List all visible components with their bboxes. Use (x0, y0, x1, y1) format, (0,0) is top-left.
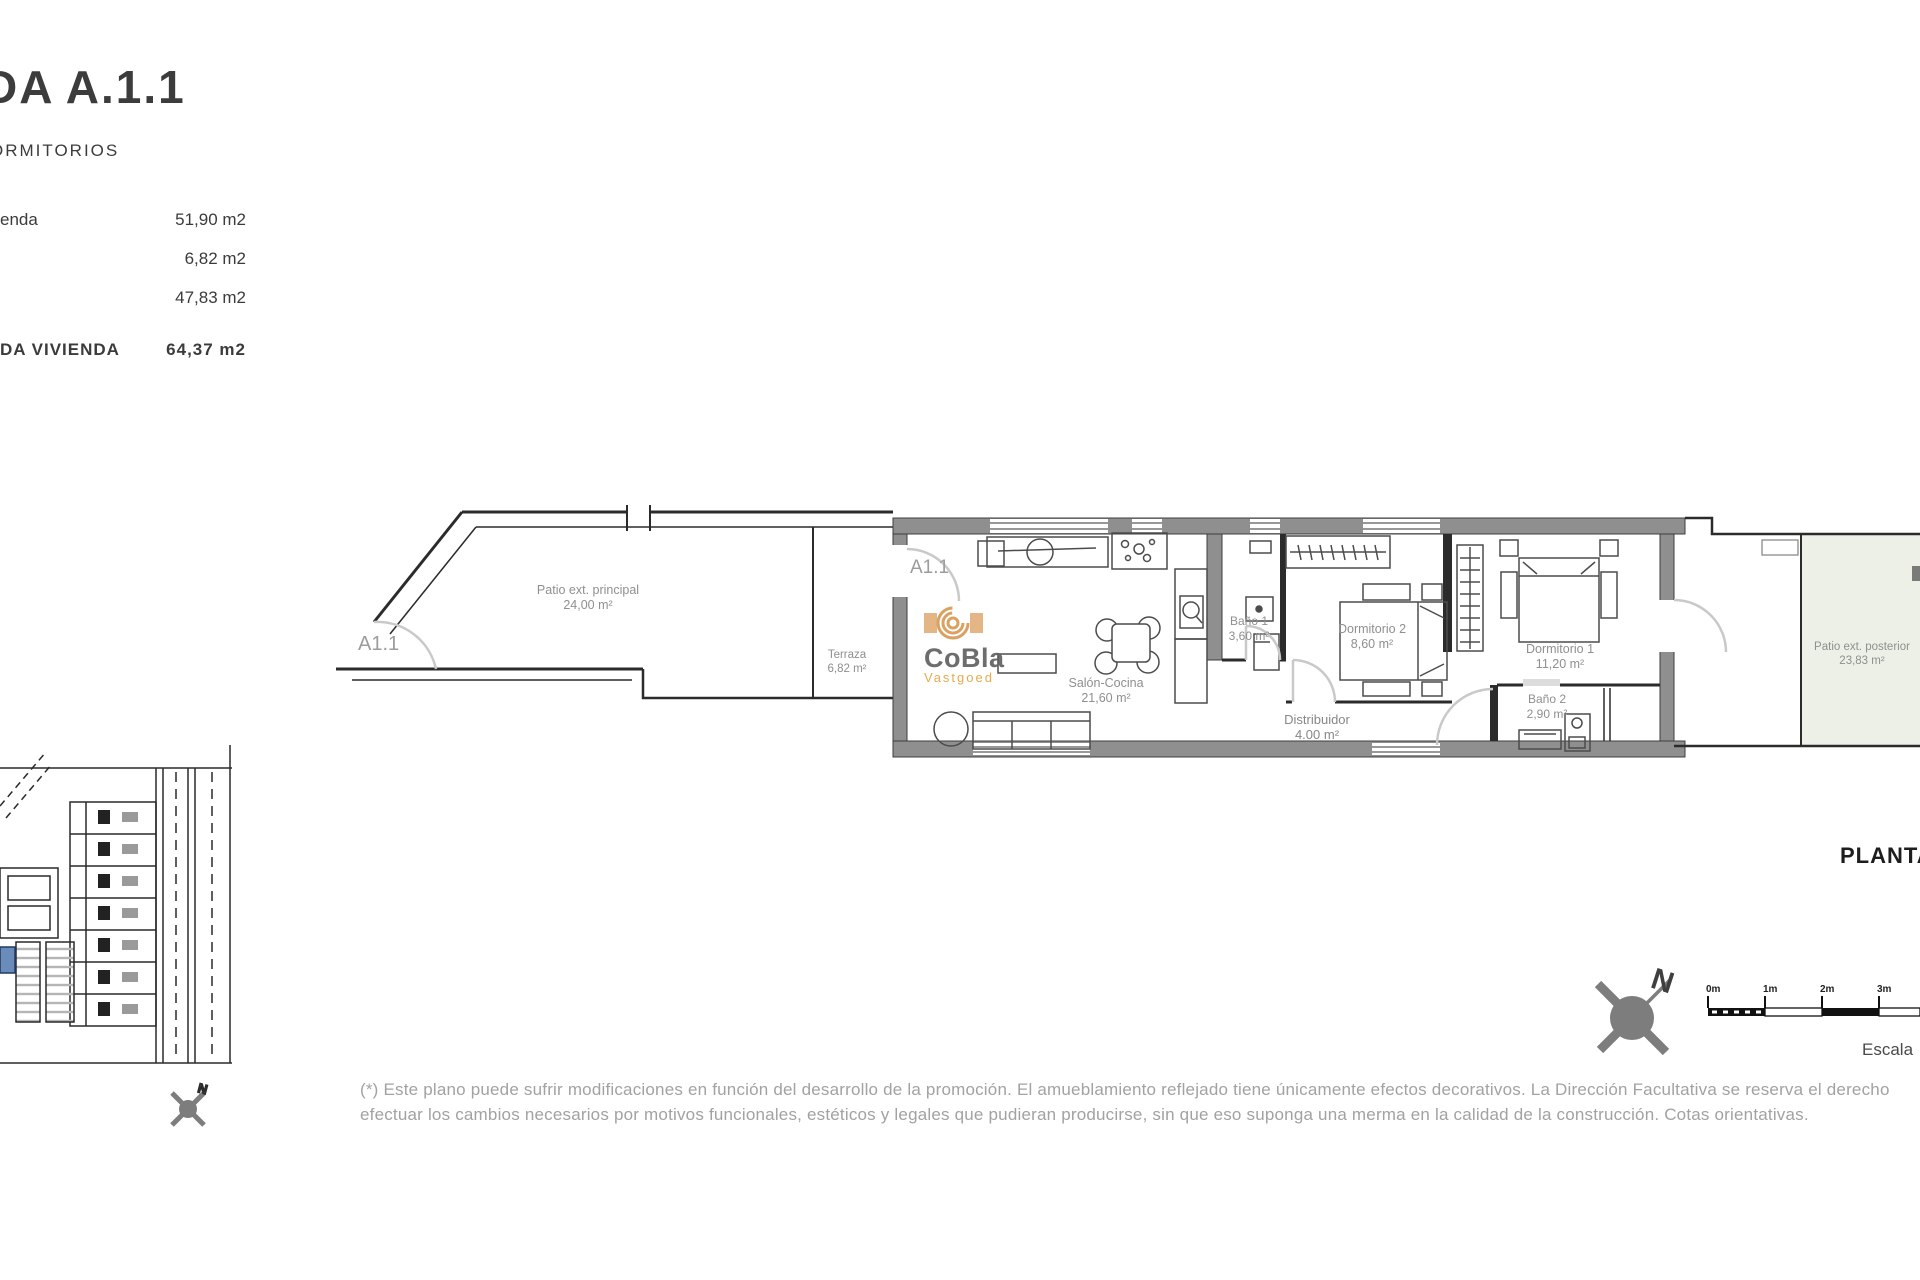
svg-text:N: N (1647, 962, 1678, 1000)
svg-text:1m: 1m (1763, 984, 1778, 995)
room-area: 23,83 m² (1814, 654, 1910, 668)
cobla-brand-text: CoBla (924, 645, 1014, 671)
cobla-logo-icon (924, 606, 986, 640)
north-compass-icon: N (1598, 962, 1678, 1052)
wardrobe-icon (1286, 536, 1390, 568)
room-name: Dormitorio 1 (1526, 642, 1594, 657)
room-name: Baño 1 (1229, 614, 1270, 629)
room-label-salon-cocina: Salón-Cocina 21,60 m² (1068, 676, 1143, 706)
closet-icon (1457, 545, 1483, 651)
floor-plan-page: DA A.1.1 ORMITORIOS enda 51,90 m2 6,82 m… (0, 0, 1920, 1280)
rear-door-gap (1659, 600, 1675, 652)
room-area: 3,60 m² (1229, 629, 1270, 644)
room-area: 8,60 m² (1338, 637, 1406, 652)
room-label-dormitorio1: Dormitorio 1 11,20 m² (1526, 642, 1594, 672)
disclaimer-line1: (*) Este plano puede sufrir modificacion… (360, 1080, 1920, 1100)
room-name: Terraza (828, 648, 867, 662)
site-plan: N (0, 745, 232, 1125)
room-label-terraza: Terraza 6,82 m² (828, 648, 867, 676)
room-name: Patio ext. principal (537, 583, 639, 598)
room-name: Distribuidor (1284, 712, 1350, 727)
room-area: 6,82 m² (828, 662, 867, 676)
room-name: Baño 2 (1527, 692, 1568, 707)
room-name: Salón-Cocina (1068, 676, 1143, 691)
unit-label-patio: A1.1 (358, 633, 399, 656)
disclaimer-line2: efectuar los cambios necesarios por moti… (360, 1105, 1920, 1125)
entrance-door-gap (892, 545, 908, 597)
scale-label: Escala (1862, 1040, 1913, 1060)
bed1-door-arc-icon (1437, 689, 1493, 745)
room-area: 21,60 m² (1068, 691, 1143, 706)
rear-door-arc-icon (1674, 600, 1726, 652)
unit-label-entrance: A1.1 (910, 557, 949, 579)
interior-walls (1222, 534, 1660, 741)
room-area: 24,00 m² (537, 598, 639, 613)
svg-text:0m: 0m (1706, 984, 1721, 995)
patio-posterior (1674, 518, 1920, 746)
plan-title: PLANTA (1840, 843, 1920, 869)
room-label-distribuidor: Distribuidor 4.00 m² (1284, 712, 1350, 742)
room-label-bano2: Baño 2 2,90 m² (1527, 692, 1568, 722)
room-label-dormitorio2: Dormitorio 2 8,60 m² (1338, 622, 1406, 652)
room-area: 4.00 m² (1284, 727, 1350, 742)
scale-bar: 0m 1m 2m 3m (1706, 984, 1920, 1016)
bathroom1-fixtures-icon (1246, 541, 1279, 670)
room-name: Dormitorio 2 (1338, 622, 1406, 637)
svg-text:2m: 2m (1820, 984, 1835, 995)
room-area: 2,90 m² (1527, 707, 1568, 722)
site-plan-north-icon: N (172, 1080, 209, 1125)
room-label-patio-principal: Patio ext. principal 24,00 m² (537, 583, 639, 613)
bed2-door-arc-icon (1293, 660, 1335, 702)
room-area: 11,20 m² (1526, 657, 1594, 672)
bed1-icon (1500, 540, 1618, 642)
room-label-patio-posterior: Patio ext. posterior 23,83 m² (1814, 640, 1910, 668)
svg-text:N: N (196, 1080, 209, 1097)
dining-table-icon (1095, 617, 1160, 674)
room-name: Patio ext. posterior (1814, 640, 1910, 654)
room-label-bano1: Baño 1 3,60 m² (1229, 614, 1270, 644)
bath2-door-leaf-icon (1523, 679, 1560, 686)
svg-text:3m: 3m (1877, 984, 1892, 995)
cobla-watermark: CoBla Vastgoed (924, 606, 1014, 684)
highlighted-unit-marker (0, 947, 15, 973)
